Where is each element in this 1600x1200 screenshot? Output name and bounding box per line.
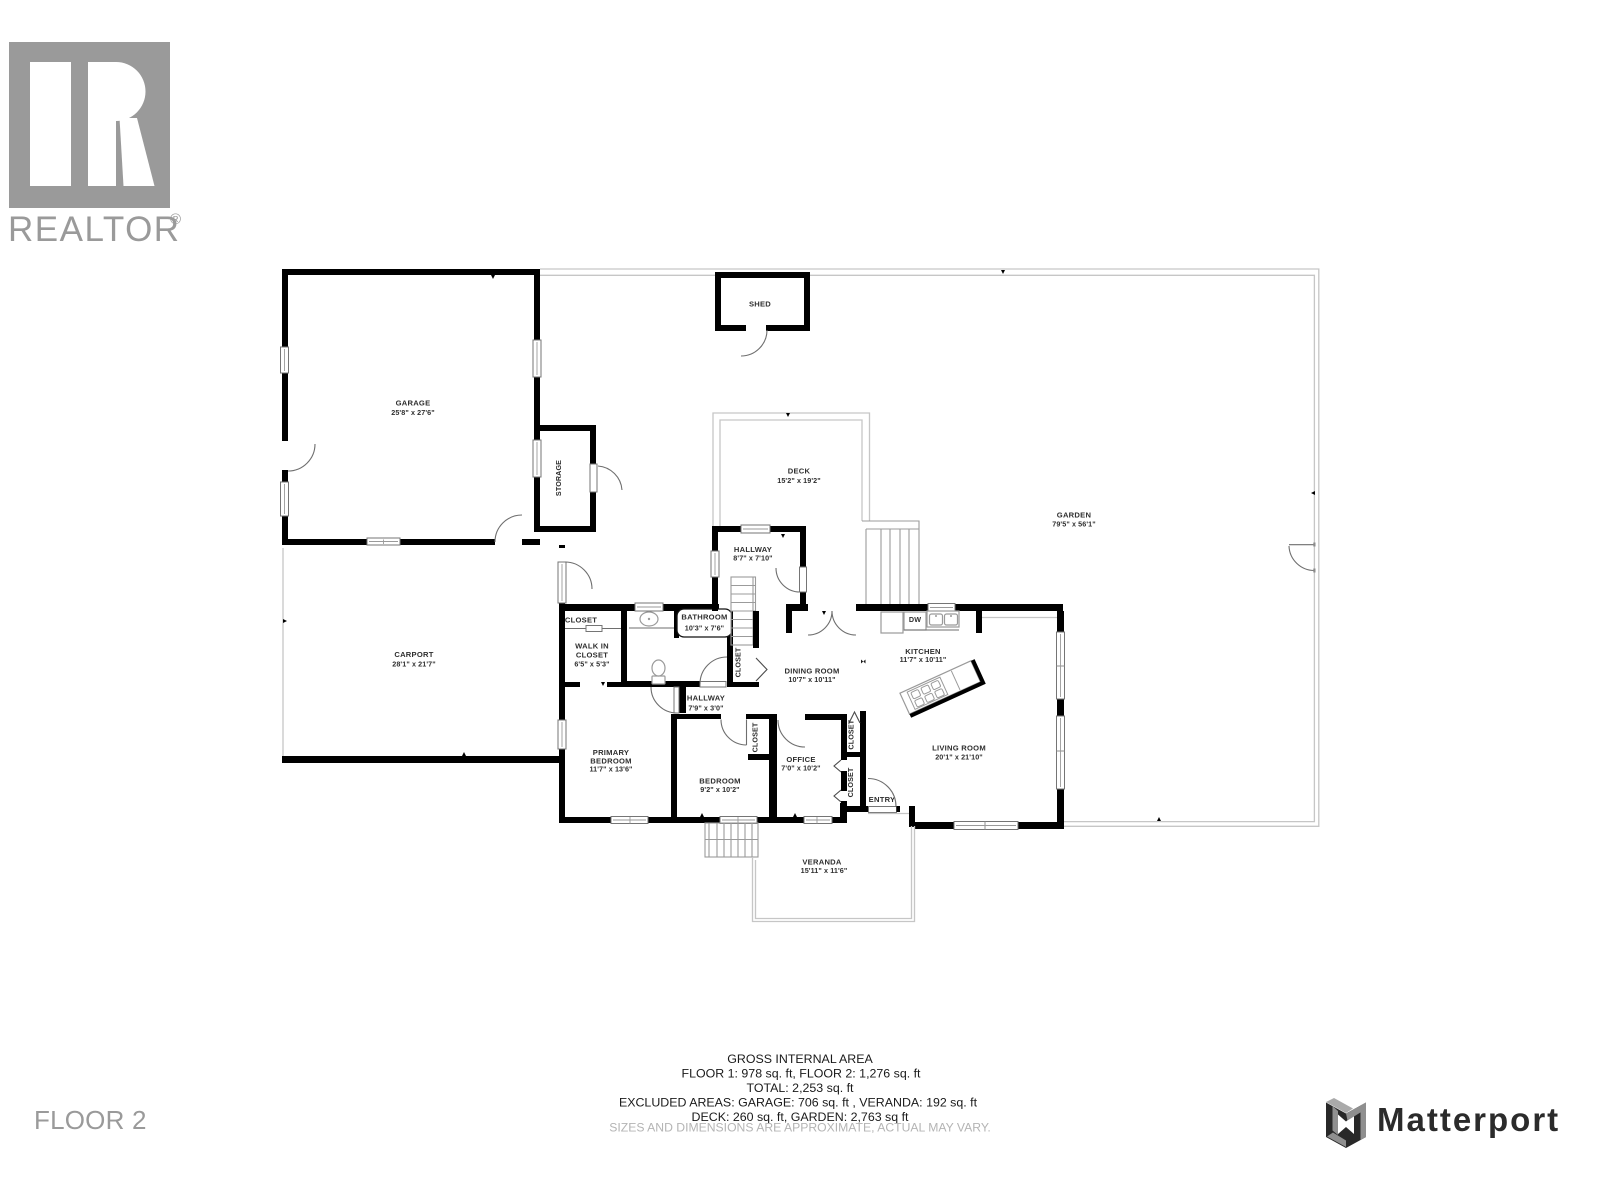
svg-text:WALK IN: WALK IN: [575, 642, 609, 651]
svg-text:9'2" x 10'2": 9'2" x 10'2": [700, 785, 739, 794]
svg-text:DW: DW: [909, 615, 921, 624]
svg-text:CLOSET: CLOSET: [846, 767, 855, 797]
svg-text:28'1" x 21'7": 28'1" x 21'7": [392, 660, 436, 669]
svg-text:SIZES AND DIMENSIONS ARE APPRO: SIZES AND DIMENSIONS ARE APPROXIMATE, AC…: [609, 1121, 991, 1135]
svg-text:SHED: SHED: [749, 300, 771, 309]
svg-text:FLOOR 1: 978 sq. ft, FLOOR 2:: FLOOR 1: 978 sq. ft, FLOOR 2: 1,276 sq. …: [682, 1067, 922, 1081]
svg-text:TOTAL: 2,253 sq. ft: TOTAL: 2,253 sq. ft: [747, 1081, 855, 1095]
svg-text:11'7" x 10'11": 11'7" x 10'11": [900, 655, 947, 664]
svg-text:FLOOR 2: FLOOR 2: [34, 1105, 147, 1135]
svg-text:HALLWAY: HALLWAY: [687, 694, 725, 703]
svg-text:15'11" x 11'6": 15'11" x 11'6": [801, 866, 848, 875]
svg-text:79'5" x 56'1": 79'5" x 56'1": [1052, 520, 1096, 529]
svg-text:10'3" x 7'6": 10'3" x 7'6": [685, 624, 724, 633]
svg-text:GARDEN: GARDEN: [1057, 511, 1091, 520]
svg-text:7'9" x 3'0": 7'9" x 3'0": [688, 704, 723, 713]
svg-text:10'7" x 10'11": 10'7" x 10'11": [788, 675, 835, 684]
svg-text:CARPORT: CARPORT: [394, 650, 433, 659]
svg-text:GROSS INTERNAL AREA: GROSS INTERNAL AREA: [727, 1052, 873, 1066]
svg-text:CLOSET: CLOSET: [751, 722, 760, 752]
svg-text:BATHROOM: BATHROOM: [681, 613, 727, 622]
svg-text:STORAGE: STORAGE: [554, 460, 563, 496]
svg-text:LIVING ROOM: LIVING ROOM: [932, 744, 986, 753]
svg-text:20'1" x 21'10": 20'1" x 21'10": [935, 753, 983, 762]
svg-text:11'7" x 13'6": 11'7" x 13'6": [589, 765, 632, 774]
svg-text:15'2" x 19'2": 15'2" x 19'2": [777, 476, 821, 485]
svg-text:DECK: DECK: [788, 467, 811, 476]
svg-text:EXCLUDED AREAS: GARAGE: 706 sq: EXCLUDED AREAS: GARAGE: 706 sq. ft , VER…: [619, 1096, 978, 1110]
svg-text:GARAGE: GARAGE: [396, 399, 431, 408]
svg-text:CLOSET: CLOSET: [734, 647, 743, 677]
svg-text:ENTRY: ENTRY: [869, 795, 896, 804]
svg-text:CLOSET: CLOSET: [565, 616, 597, 625]
svg-text:7'0" x 10'2": 7'0" x 10'2": [781, 764, 820, 773]
svg-text:CLOSET: CLOSET: [576, 651, 608, 660]
svg-text:Matterport: Matterport: [1377, 1101, 1560, 1138]
svg-text:®: ®: [170, 211, 181, 228]
svg-text:REALTOR: REALTOR: [8, 210, 181, 249]
svg-text:CLOSET: CLOSET: [847, 719, 856, 749]
svg-text:OFFICE: OFFICE: [786, 755, 815, 764]
svg-text:6'5" x 5'3": 6'5" x 5'3": [574, 660, 609, 669]
svg-text:8'7" x 7'10": 8'7" x 7'10": [733, 554, 772, 563]
svg-text:25'8" x 27'6": 25'8" x 27'6": [391, 408, 435, 417]
